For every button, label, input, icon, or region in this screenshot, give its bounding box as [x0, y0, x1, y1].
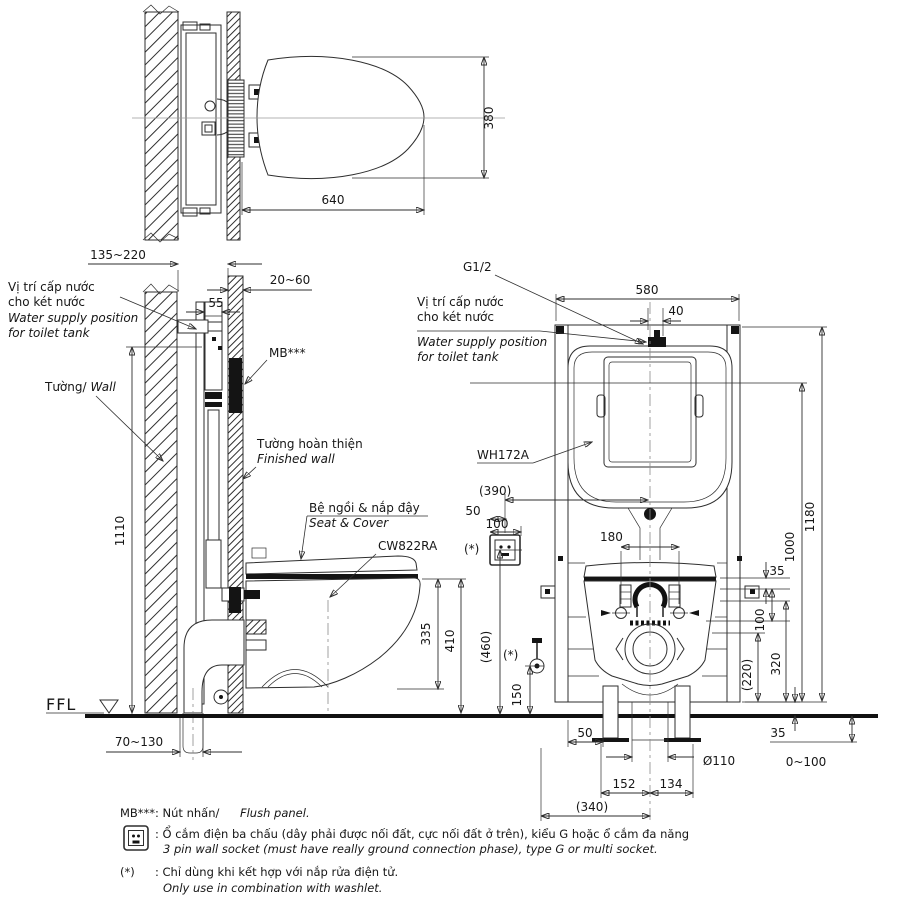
supply-fitting [648, 337, 666, 347]
dim-1000-label: 1000 [783, 532, 797, 563]
dim-152-label: 152 [613, 777, 636, 791]
dim-finish-label: 20~60 [270, 273, 311, 287]
plan-bowl-outline [257, 56, 424, 178]
note-mb-en: Flush panel. [240, 806, 310, 820]
socket-note-icon [124, 826, 148, 850]
dim-cavity-label: 135~220 [90, 248, 146, 262]
top-view: 640 380 [132, 5, 505, 242]
side-bowl [244, 548, 420, 712]
finished-wall-label-vi: Tường hoàn thiện [256, 437, 363, 451]
dim-320-label: 320 [769, 653, 783, 676]
side-rough-wall [145, 292, 177, 713]
g12-label: G1/2 [463, 260, 492, 274]
dim-100-right-label: 100 [753, 609, 767, 632]
wall-label-vi: Tường/ [44, 380, 88, 394]
dim-335-label: 335 [419, 623, 433, 646]
ffl-label: FFL [46, 695, 76, 714]
note-star-code: (*) [120, 865, 135, 879]
finished-wall-label-en: Finished wall [257, 452, 335, 466]
mb-ref-label: MB*** [269, 346, 306, 360]
dim-35-base-label: 35 [770, 726, 785, 740]
dim-55-label: 55 [208, 296, 223, 310]
side-supply-label-vi2: cho két nước [8, 295, 85, 309]
notes: MB*** : Nút nhấn/ Flush panel. : Ổ cắm đ… [120, 806, 689, 895]
dim-580-label: 580 [636, 283, 659, 297]
dim-180-label: 180 [600, 530, 623, 544]
frame-leg-right [675, 686, 690, 738]
side-supply-pipe [178, 320, 208, 333]
dim-340-label: (340) [576, 800, 608, 814]
side-supply-label-vi1: Vị trí cấp nước [8, 280, 95, 294]
wall-label: Tường/Wall [44, 380, 116, 394]
frame-leg-left [603, 686, 618, 738]
dim-150-label: 150 [510, 684, 524, 707]
plan-flange-grille [228, 80, 244, 157]
dim-220-label: (220) [740, 659, 754, 691]
dim-35-rim-label: 35 [769, 564, 784, 578]
toilet-installation-diagram: 640 380 [0, 0, 900, 900]
valve-star-label: (*) [503, 648, 518, 662]
dim-0-100-label: 0~100 [786, 755, 827, 769]
side-seat-cover [246, 556, 417, 574]
front-supply-label-vi2: cho két nước [417, 310, 494, 324]
side-flush-panel [229, 358, 242, 413]
installation-drawing-sheet: 640 380 [0, 0, 900, 900]
seat-cover-label-vi: Bệ ngồi & nắp đậy [309, 501, 420, 515]
dim-640-label: 640 [322, 193, 345, 207]
side-supply-label-en1: Water supply position [8, 311, 138, 325]
wall-label-en: Wall [91, 380, 117, 394]
dim-dia110-label: Ø110 [703, 754, 735, 768]
dim-70-130-label: 70~130 [115, 735, 163, 749]
ffl-marker [100, 700, 118, 713]
front-supply-label-en2: for toilet tank [417, 350, 500, 364]
dim-390-label: (390) [479, 484, 511, 498]
dim-380-label: 380 [482, 107, 496, 130]
note-socket-en: 3 pin wall socket (must have really grou… [163, 842, 658, 856]
side-supply-label-en2: for toilet tank [8, 326, 91, 340]
note-star-vi: : Chỉ dùng khi kết hợp với nắp rửa điện … [155, 865, 398, 879]
dim-100-socket-label: 100 [486, 517, 509, 531]
dim-50-leg-label: 50 [577, 726, 592, 740]
plan-rough-wall [145, 12, 178, 240]
socket-star-label: (*) [464, 542, 479, 556]
dim-50-socket-label: 50 [465, 504, 480, 518]
bowl-model-label: CW822RA [378, 539, 438, 553]
frame-rail-left [555, 325, 568, 702]
front-supply-label-vi1: Vị trí cấp nước [417, 295, 504, 309]
dim-40-label: 40 [668, 304, 683, 318]
note-mb-code: MB*** [120, 806, 155, 820]
front-view: G1/2 580 40 Vị trí cấp nước cho két nước… [417, 260, 857, 821]
note-star-en: Only use in combination with washlet. [163, 881, 382, 895]
dim-410-label: 410 [443, 630, 457, 653]
dim-134-label: 134 [660, 777, 683, 791]
stop-valve-icon [530, 638, 544, 673]
note-mb-vi: : Nút nhấn/ [155, 806, 219, 820]
dim-1110-label: 1110 [113, 516, 127, 547]
front-supply-label-en1: Water supply position [417, 335, 547, 349]
note-socket-vi: : Ổ cắm điện ba chấu (dây phải được nối … [155, 825, 689, 841]
side-view: 135~220 20~60 55 Vị trí cấp nước cho két… [8, 248, 466, 760]
seat-cover-label-en: Seat & Cover [309, 516, 389, 530]
tank-model-label: WH172A [477, 448, 530, 462]
dim-1180-label: 1180 [803, 502, 817, 533]
dim-460-label: (460) [479, 631, 493, 663]
